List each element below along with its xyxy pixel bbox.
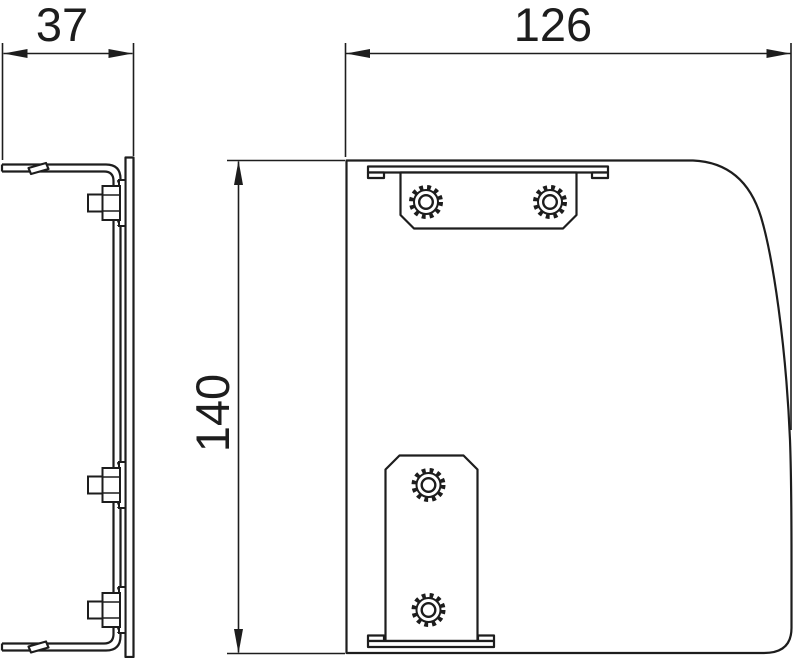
dimension-label-140: 140 (186, 374, 239, 452)
dimension-label-126: 126 (514, 0, 592, 51)
dim-arrow-up-icon (234, 161, 243, 186)
bottom-rail (368, 641, 494, 647)
mounting-plate-edge (126, 158, 134, 658)
drawing-canvas: 37 126 140 (0, 0, 794, 658)
knurled-nut (536, 188, 565, 217)
dim-arrow-right-icon (109, 49, 133, 58)
sheet-profile-outer (2, 165, 121, 651)
dimension-front-height: 140 (186, 161, 345, 654)
hex-bolt (88, 180, 126, 226)
dimension-label-37: 37 (36, 0, 88, 51)
dim-arrow-left-icon (4, 49, 28, 58)
knurled-nut (414, 471, 443, 500)
hex-bolt (88, 587, 126, 633)
front-view (347, 161, 792, 654)
top-rail-left-hook (368, 173, 384, 179)
hex-bolt (88, 462, 126, 508)
knurled-nut (412, 188, 441, 217)
sheet-profile-inner (2, 172, 114, 644)
side-view (2, 158, 134, 658)
dim-arrow-down-icon (234, 629, 243, 654)
dim-arrow-right-icon (767, 49, 791, 58)
top-rail-right-hook (592, 173, 608, 179)
dimension-side-width: 37 (3, 0, 134, 160)
knurled-nut (414, 596, 443, 625)
technical-drawing: 37 126 140 (0, 0, 794, 658)
dim-arrow-left-icon (346, 49, 370, 58)
